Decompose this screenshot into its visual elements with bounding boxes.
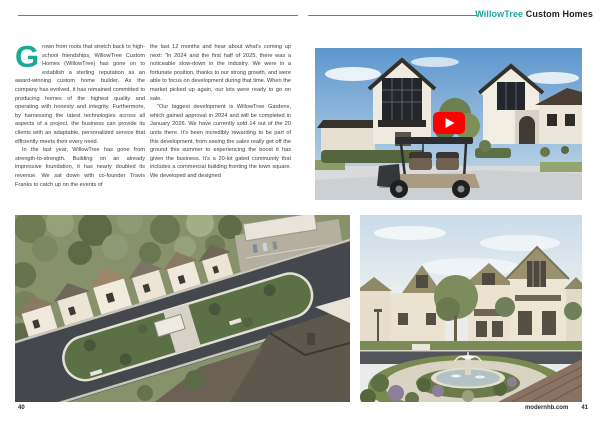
aerial-render bbox=[15, 215, 350, 402]
header-rule-left bbox=[18, 15, 298, 16]
brand-name: WillowTree bbox=[475, 9, 523, 19]
youtube-play-icon[interactable] bbox=[433, 112, 465, 134]
website-link: modernhb.com bbox=[525, 405, 568, 411]
paragraph-2: In the last year, WillowTree has gone fr… bbox=[15, 146, 145, 189]
footer-right: modernhb.com 41 bbox=[525, 405, 588, 411]
header-rule-right bbox=[308, 15, 477, 16]
page-number-left: 40 bbox=[18, 405, 25, 411]
fountain-courtyard-photo bbox=[360, 215, 582, 402]
paragraph-4: “Our biggest development is WillowTree G… bbox=[150, 103, 291, 180]
magazine-spread: WillowTree Custom Homes Grown from roots… bbox=[0, 0, 600, 424]
page-number-right: 41 bbox=[581, 405, 588, 411]
paragraph-3: the last 12 months and hear about what’s… bbox=[150, 43, 291, 103]
drop-cap: G bbox=[15, 44, 39, 69]
article-column-1: Grown from roots that stretch back to hi… bbox=[15, 43, 145, 205]
aerial-development-photo bbox=[15, 215, 350, 402]
brand-suffix: Custom Homes bbox=[526, 9, 593, 19]
article-column-2: the last 12 months and hear about what’s… bbox=[150, 43, 291, 205]
magazine-header: WillowTree Custom Homes bbox=[475, 9, 593, 19]
paragraph-1: Grown from roots that stretch back to hi… bbox=[15, 43, 145, 146]
video-thumbnail-home-exterior[interactable] bbox=[315, 48, 582, 200]
courtyard-render bbox=[360, 215, 582, 402]
